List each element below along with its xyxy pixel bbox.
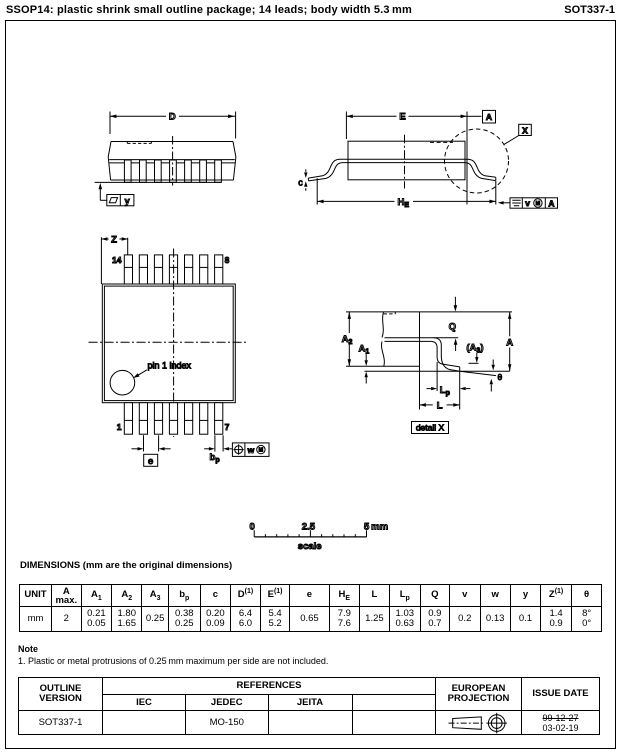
svg-text:scale: scale (298, 541, 322, 552)
svg-text:E: E (399, 112, 405, 123)
svg-text:1: 1 (117, 422, 122, 432)
svg-text:X: X (522, 125, 528, 135)
svg-text:D: D (169, 112, 176, 123)
svg-text:M: M (536, 201, 541, 207)
svg-text:θ: θ (498, 372, 503, 382)
svg-text:A: A (548, 198, 554, 208)
svg-text:L: L (437, 400, 443, 411)
svg-text:M: M (259, 448, 264, 454)
svg-text:Z: Z (111, 234, 117, 245)
svg-text:(A3): (A3) (466, 342, 483, 354)
svg-text:Q: Q (449, 321, 456, 332)
svg-text:bp: bp (210, 452, 220, 464)
svg-text:A: A (486, 112, 492, 122)
svg-text:v: v (525, 198, 530, 208)
svg-text:0: 0 (250, 521, 255, 532)
svg-text:8: 8 (225, 255, 230, 265)
svg-text:5 mm: 5 mm (364, 521, 388, 532)
svg-text:pin 1 index: pin 1 index (148, 361, 192, 371)
svg-text:e: e (148, 456, 153, 467)
svg-text:w: w (247, 445, 255, 455)
svg-text:7: 7 (225, 422, 230, 432)
svg-text:A: A (506, 337, 513, 348)
svg-text:HE: HE (398, 197, 410, 209)
svg-text:14: 14 (112, 255, 122, 265)
svg-text:detail X: detail X (416, 423, 445, 433)
svg-text:y: y (125, 196, 130, 206)
svg-text:c: c (298, 177, 303, 187)
svg-text:A2: A2 (342, 334, 353, 346)
svg-text:2.5: 2.5 (302, 521, 316, 532)
svg-text:Lp: Lp (440, 385, 450, 397)
svg-text:A1: A1 (359, 343, 370, 355)
